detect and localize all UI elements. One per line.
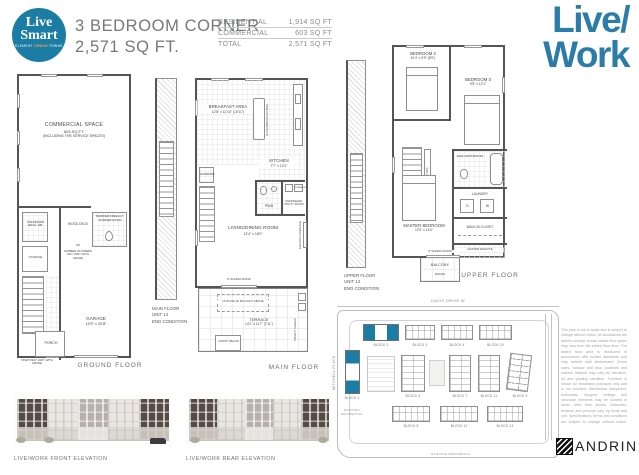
logo-tagline: ELEMENT URBAN TOWNS: [12, 44, 66, 48]
siteplan-block-1: [345, 350, 360, 394]
road-edge: [337, 306, 559, 307]
siteplan-block-7: [449, 355, 471, 392]
bush-icon: [16, 437, 26, 443]
breakfast-area-room: BREAKFAST AREA 12'8" x 11'10" (10'11"): [199, 104, 257, 114]
block-label: BLOCK 1: [337, 396, 367, 400]
window-icon: [17, 94, 20, 108]
existing-residential-bottom: EXISTING RESIDENTIAL: [421, 452, 481, 456]
wall: [255, 214, 305, 216]
car-icon: [150, 438, 166, 444]
bedroom2-room: BEDROOM 2 10'4" x 9'9" (8'9"): [396, 51, 450, 60]
wall: [19, 206, 91, 208]
elevation-mid-unit: [245, 399, 273, 440]
block-label: BLOCK 9: [503, 394, 537, 398]
logo-word-smart: Smart: [12, 29, 66, 42]
parking-area: [367, 356, 395, 392]
garage-room: GARAGE 10'9" x 20'8": [71, 316, 121, 326]
sink-icon: [271, 186, 277, 192]
street-label-left: MITCHELL PLACE: [332, 332, 336, 390]
commercial-space-room: COMMERCIAL SPACE 603 SQ.FT. (INCLUDING T…: [27, 122, 121, 138]
road-edge: [545, 314, 546, 440]
laundry-room: LAUNDRY: [456, 192, 504, 196]
elevation-mid-unit: [47, 399, 77, 440]
andrin-logo: ANDRIN: [557, 438, 638, 454]
front-elevation-image: [14, 392, 172, 450]
powder-room: BARRIER-FREE ALT. POWDER ROOM: [92, 212, 127, 247]
risers-note: NUMBER OF RISERS MAY VARY WITH GRADE: [63, 250, 93, 260]
wood-deck-label: WOOD DECK: [65, 222, 91, 226]
main-floor-end-condition-fragment: [155, 78, 177, 300]
andrin-logo-icon: [557, 439, 572, 454]
front-elevation-building: [17, 399, 169, 441]
bed-icon: [406, 67, 438, 111]
upper-fragment-label: UPPER FLOOR UNIT 12 END CONDITION: [344, 273, 379, 292]
electric-fireplace-label: ELECTRIC FIREPLACE: [299, 218, 302, 252]
window-icon: [464, 45, 482, 48]
siteplan-block-13: [487, 406, 523, 422]
canopy-below: CANOPY BELOW: [215, 335, 241, 351]
elevation-mid-unit: [217, 399, 245, 440]
window-icon: [195, 230, 198, 246]
closet-rod: [458, 235, 502, 236]
flush-breakfast-bar-label: FLUSH BREAKFAST BAR: [266, 100, 269, 140]
brand-line1: Live/: [543, 2, 629, 37]
wall: [452, 217, 507, 219]
bathtub-icon: [490, 153, 503, 185]
bush-icon: [190, 437, 200, 443]
breakfast-area-floor: [197, 80, 259, 165]
elevation-end-unit: [17, 399, 47, 440]
sliding-door-label: 8' SLIDING DOOR: [219, 278, 259, 281]
wall: [452, 187, 507, 189]
upper-floor-end-condition-fragment: [346, 60, 366, 268]
stairs: [159, 141, 174, 217]
elevation-mid-unit: [273, 399, 301, 440]
elevation-mid-unit: [108, 399, 138, 440]
toilet-icon: [260, 186, 267, 195]
rear-elevation-image: [186, 392, 332, 450]
spec-row-commercial: COMMERCIAL 603 SQ FT: [218, 28, 332, 39]
spec-value: 2,571 SQ FT: [289, 41, 332, 48]
block-label: BLOCK 13: [485, 424, 525, 428]
pillow-line: [407, 68, 437, 76]
stove-icon: [295, 118, 301, 130]
elevation-end-unit: [189, 399, 217, 440]
sink-icon: [295, 94, 301, 104]
porch: PORCH: [35, 331, 65, 357]
elevation-end-unit: [301, 399, 329, 440]
spec-value: 1,914 SQ FT: [289, 19, 332, 26]
utility-room: UNFINISHED UTILITY ROOM: [283, 200, 304, 207]
living-dining-room: LIVING/DINING ROOM 13'4" x 18'0": [211, 226, 295, 236]
brand-line2: Work: [543, 37, 629, 72]
rear-elevation-caption: LIVE/WORK REAR ELEVATION: [186, 456, 336, 462]
washer-icon: W: [480, 199, 494, 213]
spec-label: RESIDENTIAL: [218, 19, 267, 26]
bush-icon: [318, 437, 328, 443]
wall: [449, 47, 451, 119]
toilet-icon: [460, 169, 468, 179]
window-icon: [87, 74, 103, 77]
block-label: BLOCK 12: [472, 394, 506, 398]
courtyard: [429, 360, 445, 386]
balcony: BALCONY RAILING: [420, 258, 460, 282]
siteplan-block-11: [440, 406, 478, 422]
elevation-end-unit: [139, 399, 169, 440]
wardrobe-closet: WARDROBE: [199, 167, 214, 183]
upper-floor-plan: BEDROOM 2 10'4" x 9'9" (8'9") BEDROOM 3 …: [392, 45, 505, 258]
walkin-closet-room: WALK-IN CLOSET: [458, 225, 502, 229]
window-icon: [17, 168, 20, 182]
siteplan-block-9: [506, 353, 532, 392]
toilet-icon: [105, 231, 113, 241]
stairs: [350, 153, 363, 223]
storage-room: STORAGE: [22, 246, 48, 272]
siteplan-block-10: [479, 325, 512, 340]
site-plan: DAVIS DRIVE W MITCHELL PLACE BLOCK 2 BLO…: [333, 296, 635, 474]
spec-label: COMMERCIAL: [218, 30, 268, 37]
kitchen-island: [253, 98, 265, 140]
siteplan-block-6: [401, 355, 425, 392]
ac-pad-icon: [298, 303, 306, 311]
bush-icon: [44, 437, 54, 443]
up-label: UP: [71, 244, 85, 248]
stairs: [22, 276, 44, 334]
garage-door-icon: [74, 355, 118, 358]
privacy-screen-label: PRIVACY SCREEN: [294, 313, 297, 347]
spec-label: TOTAL: [218, 41, 241, 48]
block-label: BLOCK 4: [437, 343, 477, 347]
window-icon: [41, 74, 57, 77]
block-label: BLOCK 8: [391, 424, 431, 428]
block-label: BLOCK 10: [475, 343, 516, 347]
elevation-mid-unit: [78, 399, 108, 440]
existing-residential-left: EXISTING RESIDENTIAL: [339, 408, 365, 416]
balcony-outline-label: OUTLINE OF BALCONY ABOVE: [217, 300, 269, 303]
rear-elevation-building: [189, 399, 329, 441]
upper-sliding-door-label: 8' SLIDING DOOR: [420, 250, 460, 253]
wall: [281, 180, 283, 216]
hwt-icon: [285, 184, 293, 192]
bedroom3-room: BEDROOM 3 9'9" x 12'1": [452, 77, 504, 86]
mechanical-room: UNFINISHED MECH. RM.: [22, 212, 48, 242]
road-edge: [551, 314, 552, 440]
block-label: BLOCK 11: [439, 424, 479, 428]
window-icon: [392, 157, 395, 173]
window-icon: [17, 131, 20, 145]
block-label: BLOCK 2: [359, 343, 403, 347]
pillow-line: [403, 176, 435, 184]
bed-icon: [402, 175, 436, 221]
main-fragment-label: MAIN FLOOR UNIT 12 END CONDITION: [152, 306, 187, 325]
main-floor-caption: MAIN FLOOR: [254, 364, 334, 371]
railing-label: RAILING: [421, 273, 459, 276]
siteplan-block-12: [478, 355, 500, 392]
pwd-room: PWD: [257, 204, 281, 208]
pillow-line: [465, 96, 499, 104]
furnace-icon: FURNACE: [294, 184, 303, 192]
kitchen-room: KITCHEN 7'7" x 13'1": [259, 158, 299, 168]
street-label-top: DAVIS DRIVE W: [393, 298, 503, 303]
master-bedroom-room: MASTER BEDROOM 12'0" x 14'0": [396, 223, 452, 232]
master-ensuite-room: MASTER ENSUITE: [456, 248, 504, 252]
disclaimer-text: This plan is not to scale and is subject…: [561, 328, 627, 424]
ac-pad-icon: [298, 293, 306, 301]
andrin-logo-text: ANDRIN: [575, 438, 638, 454]
terrace: OUTLINE OF BALCONY ABOVE TERRACE 14'1" x…: [198, 288, 308, 352]
area-spec-table: RESIDENTIAL 1,914 SQ FT COMMERCIAL 603 S…: [218, 17, 332, 49]
spec-row-residential: RESIDENTIAL 1,914 SQ FT: [218, 17, 332, 28]
siteplan-block-3: [405, 325, 435, 340]
siteplan-block-8: [392, 406, 430, 422]
ground-floor-caption: GROUND FLOOR: [55, 362, 165, 369]
window-icon: [406, 45, 424, 48]
fireplace-icon: [303, 222, 307, 248]
block-label: BLOCK 3: [401, 343, 439, 347]
siteplan-block-2: [363, 324, 399, 341]
upper-floor-caption: UPPER FLOOR: [458, 272, 522, 279]
terrace-room: TERRACE 14'1" x 11'7" (7'11"): [229, 317, 289, 326]
front-elevation-caption: LIVE/WORK FRONT ELEVATION: [14, 456, 174, 462]
balcony-label: BALCONY: [421, 263, 459, 268]
spec-row-total: TOTAL 2,571 SQ FT: [218, 39, 332, 49]
block-label: BLOCK 6: [395, 394, 431, 398]
bed-icon: [464, 95, 500, 145]
main-floor-plan: BREAKFAST AREA 12'8" x 11'10" (10'11") F…: [195, 78, 308, 288]
main-bathroom-room: MAIN BATHROOM: [454, 155, 486, 159]
entry-note: STEPS MAY VARY WITH GRADE: [20, 359, 54, 366]
ground-floor-plan: COMMERCIAL SPACE 603 SQ.FT. (INCLUDING T…: [17, 74, 131, 358]
siteplan-block-4: [441, 325, 473, 340]
livework-brand-title: Live/ Work: [543, 2, 629, 72]
wall: [394, 119, 451, 121]
dryer-icon: D: [460, 199, 474, 213]
livework-brochure-page: { "header": { "logo": { "word1": "Live",…: [0, 0, 639, 475]
spec-value: 603 SQ FT: [295, 30, 332, 37]
livesmart-logo: Live Smart ELEMENT URBAN TOWNS: [12, 8, 66, 62]
